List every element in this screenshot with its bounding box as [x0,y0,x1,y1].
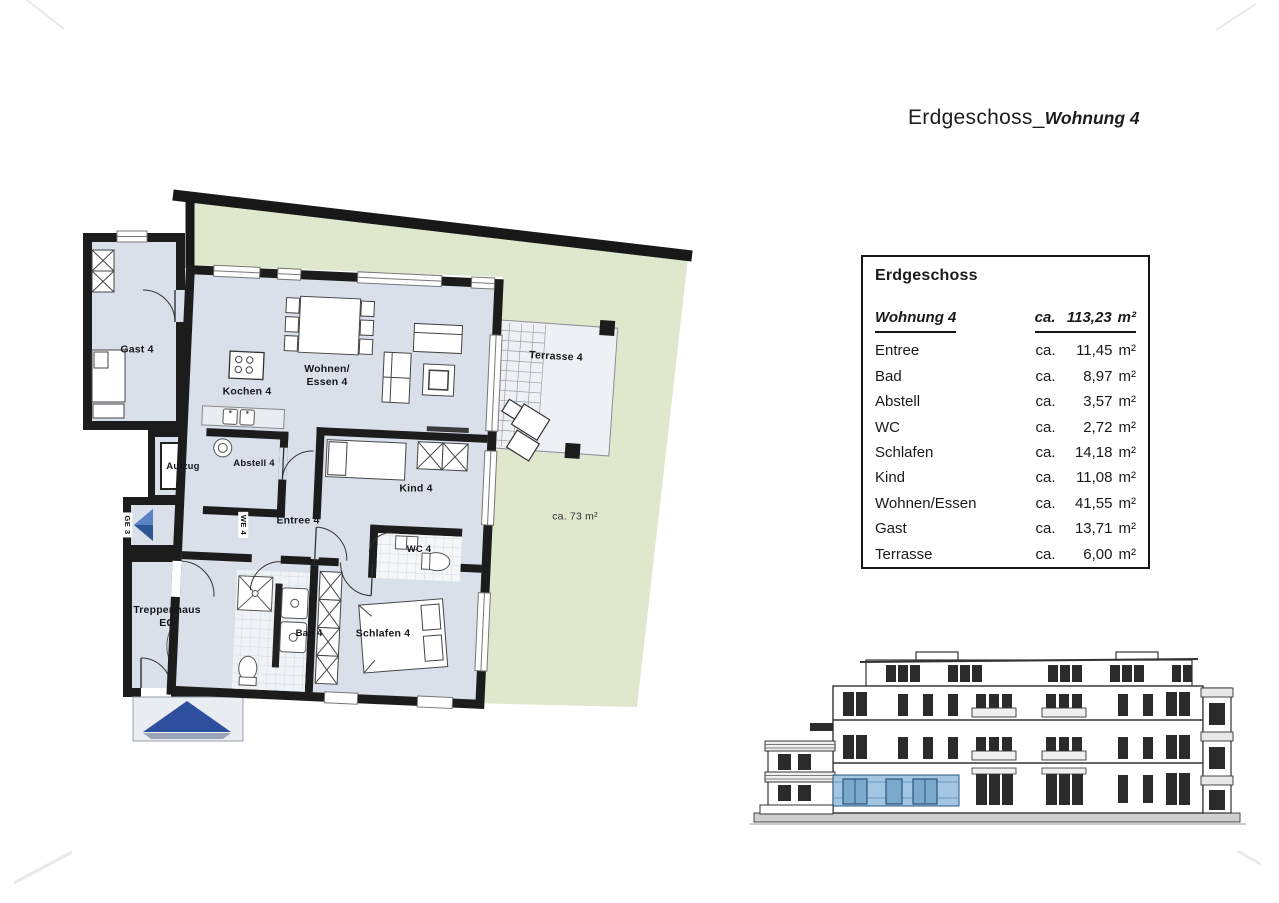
room-label-aufzug: Aufzug [166,461,199,473]
area-row: Wohnen/Essen ca.41,55m² [875,491,1136,516]
scan-artifact [1215,3,1256,31]
room-gast [83,231,185,430]
garden-area-label: ca. 73 m² [552,510,598,523]
terrace-corner-pier [599,320,615,336]
terrace [486,313,619,467]
room-label-terrasse: Terrasse 4 [529,349,583,365]
area-table: Erdgeschoss Wohnung 4 ca.113,23m² Entree… [861,255,1150,569]
page-title-prefix: Erdgeschoss_ [908,106,1045,129]
highlighted-unit-glazing [833,775,959,806]
area-row: Bad ca.8,97m² [875,364,1136,389]
room-label-treppenhaus: Treppenhaus EG [133,604,201,630]
area-row: Terrasse ca.6,00m² [875,542,1136,567]
entrance-canopy [133,697,243,741]
room-label-kochen: Kochen 4 [223,385,272,398]
scan-artifact [18,0,65,30]
room-label-wc: WC 4 [407,544,432,556]
room-label-entree: Entree 4 [276,514,319,527]
bed-icon [92,350,125,418]
room-label-kind: Kind 4 [399,482,432,495]
dining-table-icon [284,296,374,356]
washer-icon [213,438,232,457]
floor-plan: Gast 4 Wohnen/ Essen 4 Kochen 4 Aufzug A… [75,180,730,755]
page-title: Erdgeschoss_Wohnung 4 [908,106,1140,130]
room-label-gast: Gast 4 [120,343,153,356]
left-annex [765,723,835,813]
wardrobe-icon [417,442,468,471]
total-value: ca.113,23m² [1035,305,1136,333]
shower-icon [237,576,273,612]
area-table-total-row: Wohnung 4 ca.113,23m² [875,305,1136,333]
area-row: Kind ca.11,08m² [875,465,1136,490]
area-row: Schlafen ca.14,18m² [875,440,1136,465]
stove-icon [229,351,264,380]
scan-artifact [1237,850,1261,866]
scan-artifact [13,851,73,885]
area-row: WC ca.2,72m² [875,415,1136,440]
right-annex [1201,688,1233,813]
bed-icon [326,440,407,481]
total-label: Wohnung 4 [875,305,956,333]
page: Erdgeschoss_Wohnung 4 [0,0,1279,903]
wardrobe-icon [92,250,114,292]
area-row: Entree ca.11,45m² [875,338,1136,363]
room-label-abstell: Abstell 4 [233,458,274,470]
terrace-corner-pier [565,443,581,459]
area-table-header: Erdgeschoss [875,267,1136,285]
unit-marker-we4: WE 4 [238,512,248,538]
apartment-main [166,264,504,710]
building-elevation-drawing [748,648,1248,838]
wc-room [376,533,462,582]
area-row: Abstell ca.3,57m² [875,389,1136,414]
building-elevation [748,648,1248,838]
area-row: Gast ca.13,71m² [875,516,1136,541]
room-label-bad: Bad 4 [296,628,323,640]
room-label-wohnen-essen: Wohnen/ Essen 4 [304,363,350,389]
tv-table-icon [422,364,454,396]
page-title-suffix: Wohnung 4 [1045,108,1140,128]
room-label-schlafen: Schlafen 4 [356,627,411,640]
kitchen-counter [202,406,285,429]
unit-marker-ge3: GE 3 [122,512,132,537]
